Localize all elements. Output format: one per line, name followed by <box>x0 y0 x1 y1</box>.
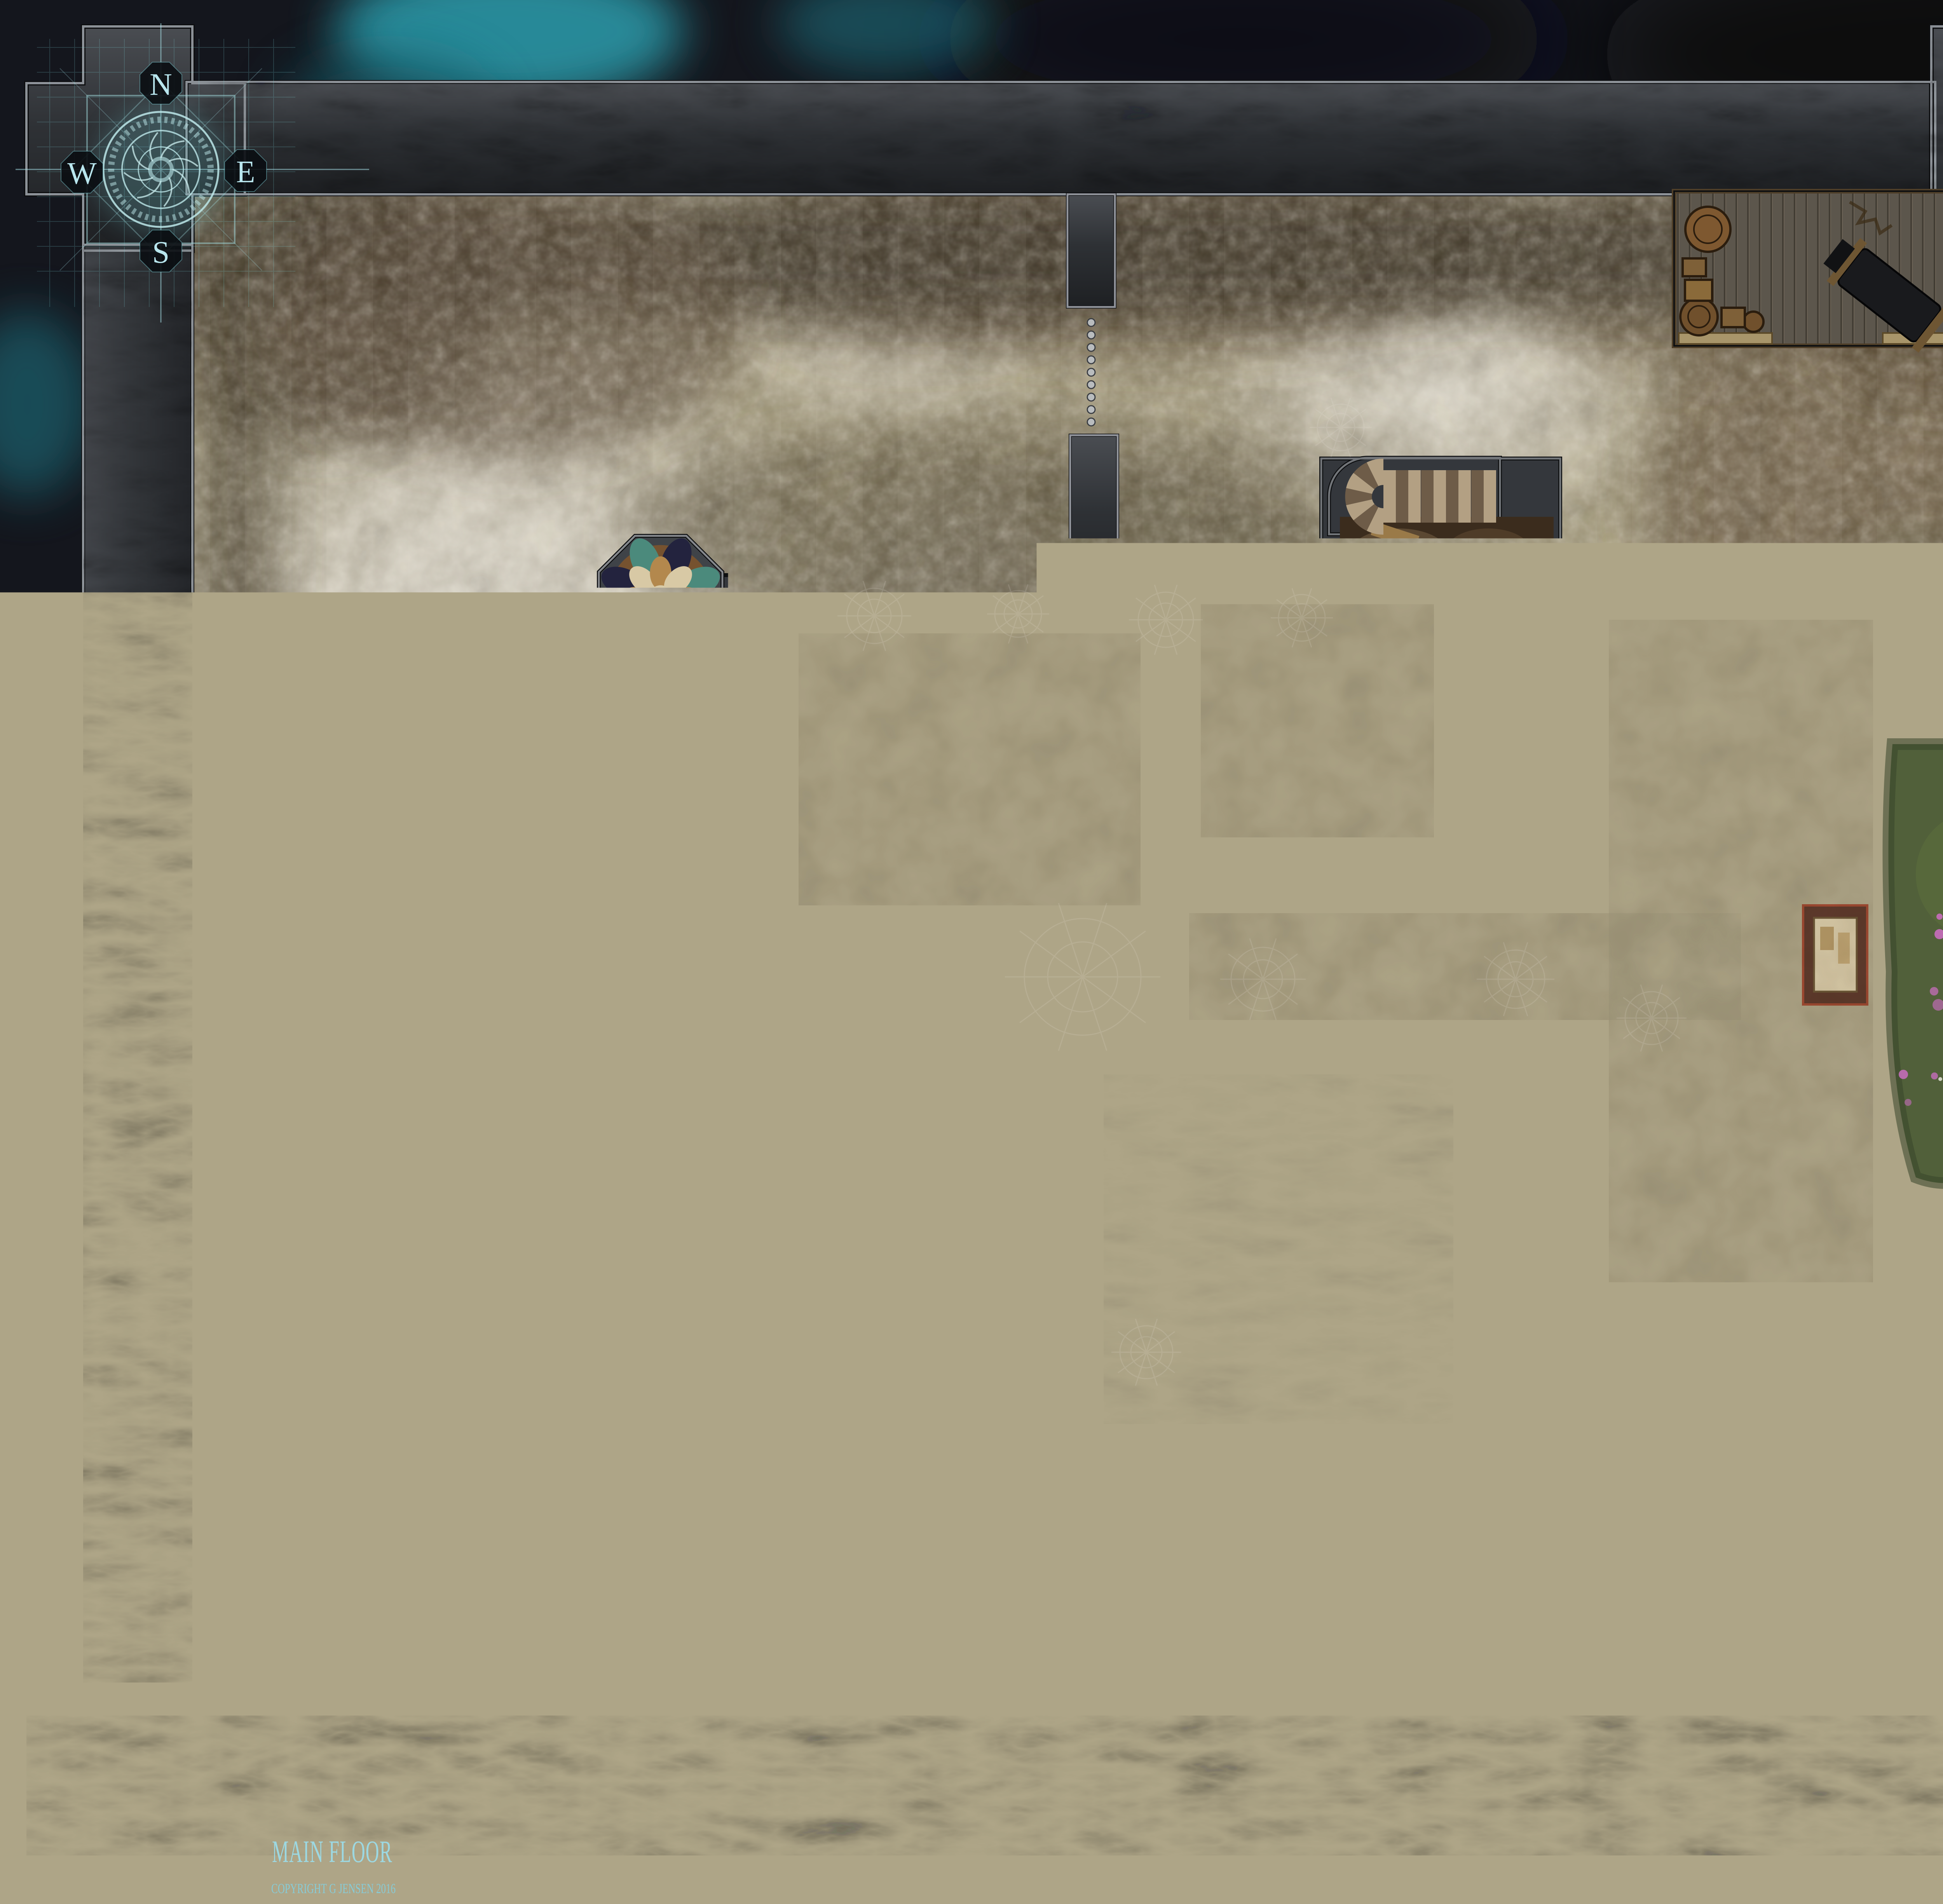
svg-text:COPYRIGHT G JENSEN 2016: COPYRIGHT G JENSEN 2016 <box>271 1881 396 1896</box>
svg-text:N: N <box>150 68 172 102</box>
svg-text:W: W <box>67 157 97 191</box>
svg-text:S: S <box>152 235 170 270</box>
svg-text:MAIN FLOOR: MAIN FLOOR <box>272 1835 392 1869</box>
svg-text:E: E <box>236 155 255 189</box>
